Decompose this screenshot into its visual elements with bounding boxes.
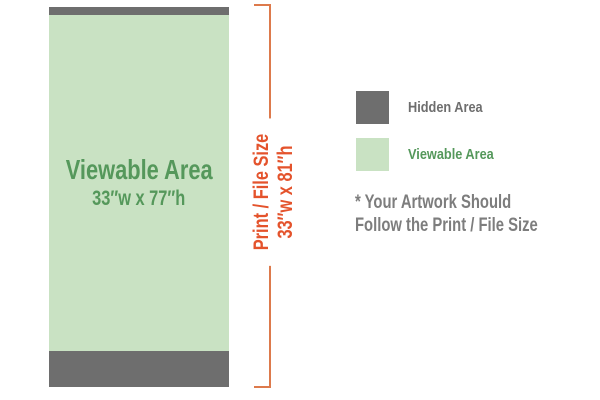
- viewable-area-swatch: [356, 138, 389, 171]
- viewable-area-size: 33″w x 77″h: [92, 186, 185, 212]
- banner-template-diagram: Viewable Area 33″w x 77″h Print / File S…: [0, 0, 600, 400]
- viewable-area-region: Viewable Area 33″w x 77″h: [49, 15, 229, 351]
- legend: Hidden Area Viewable Area: [356, 91, 509, 171]
- artwork-note-line2: Follow the Print / File Size: [355, 214, 538, 237]
- hidden-area-legend-label: Hidden Area: [408, 99, 483, 116]
- banner-graphic: Viewable Area 33″w x 77″h: [49, 7, 229, 387]
- hidden-area-bottom-bar: [49, 351, 229, 387]
- legend-row-hidden: Hidden Area: [356, 91, 509, 124]
- artwork-note: * Your Artwork Should Follow the Print /…: [355, 191, 538, 237]
- viewable-area-label: Viewable Area: [66, 155, 213, 185]
- hidden-area-swatch: [356, 91, 389, 124]
- hidden-area-top-bar: [49, 7, 229, 15]
- print-size-value: 33″w x 81″h: [274, 134, 298, 251]
- legend-row-viewable: Viewable Area: [356, 138, 509, 171]
- print-size-label: Print / File Size: [250, 134, 274, 251]
- artwork-note-line1: * Your Artwork Should: [355, 191, 538, 214]
- print-size-label-group: Print / File Size 33″w x 81″h: [246, 118, 302, 266]
- viewable-area-legend-label: Viewable Area: [408, 146, 494, 163]
